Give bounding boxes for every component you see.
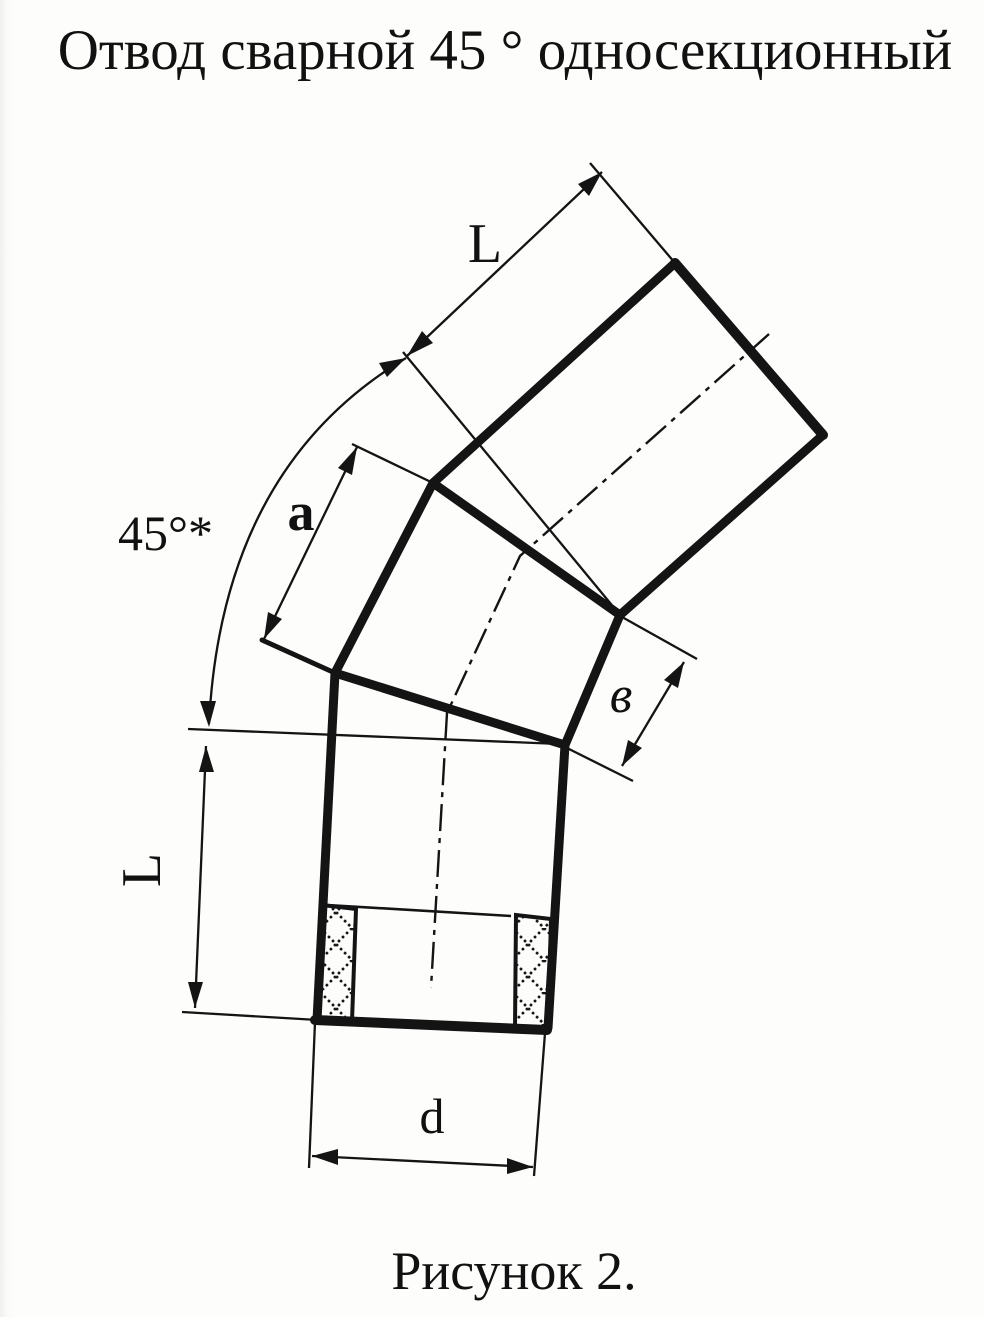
label-a: a <box>288 482 315 542</box>
top-pipe-section <box>433 263 823 615</box>
socket-sleeve <box>318 905 551 1028</box>
dimension-diameter: d <box>309 1022 545 1176</box>
arrowhead <box>622 740 642 766</box>
middle-pipe-section <box>335 483 620 745</box>
ext-line-v-top <box>622 617 697 659</box>
lower-weld-seam-overshoot <box>262 640 335 673</box>
ext-line-end-cap <box>590 163 675 263</box>
weld-seams <box>262 483 620 745</box>
arrowhead <box>338 447 357 475</box>
lower-weld-seam <box>335 673 565 745</box>
sleeve-wall-left-hatch <box>318 905 356 1021</box>
ext-line-a-top <box>352 444 433 483</box>
arrowhead <box>188 982 203 1008</box>
ext-line-d-right <box>534 1033 545 1176</box>
arrowhead <box>664 662 684 688</box>
dim-line-L-top <box>407 172 602 356</box>
label-v: в <box>610 667 633 724</box>
ext-line-bottom-bottom <box>182 1012 318 1020</box>
sleeve-wall-right-hatch <box>515 915 551 1028</box>
arrowhead <box>264 612 282 639</box>
dim-line-a <box>264 447 357 639</box>
arrowhead <box>507 1158 533 1174</box>
ext-line-bottom-top <box>188 729 560 744</box>
ext-line-d-left <box>309 1022 315 1168</box>
arrowhead <box>199 746 214 772</box>
top-pipe-end-cap <box>675 263 823 435</box>
arrowhead <box>379 358 406 377</box>
arrowhead <box>200 701 216 727</box>
label-length-top: L <box>468 213 502 275</box>
dimension-bend-angle: 45°* <box>118 358 406 727</box>
label-diameter: d <box>420 1088 445 1144</box>
scanned-drawing-page: Отвод сварной 45 ° односекционный <box>0 0 984 1317</box>
label-bend-angle: 45°* <box>118 505 213 561</box>
label-length-bottom: L <box>111 853 173 887</box>
dim-line-L-bottom <box>195 746 206 1008</box>
dim-line-d <box>312 1156 533 1167</box>
elbow-technical-drawing: L 45°* a в <box>0 0 984 1317</box>
top-pipe-right-side <box>620 435 823 615</box>
middle-pipe-left-side <box>335 483 433 673</box>
arrowhead <box>312 1149 338 1165</box>
figure-caption: Рисунок 2. <box>0 1240 984 1302</box>
